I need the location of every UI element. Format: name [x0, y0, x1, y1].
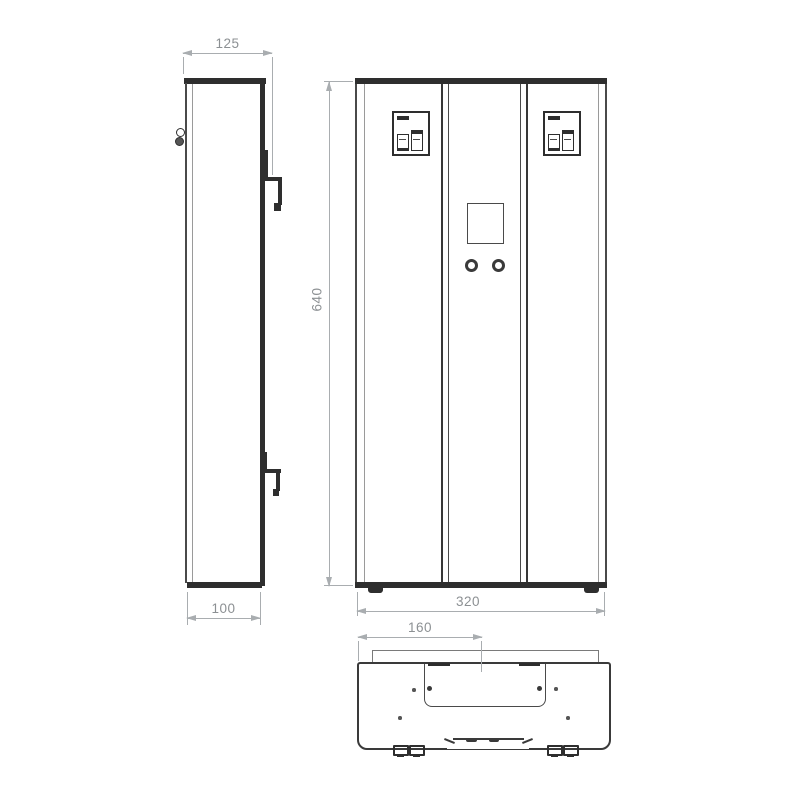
breaker-switch [411, 130, 423, 151]
dimension-depth-body: 100 [187, 601, 260, 619]
gland-tab [567, 754, 574, 757]
gland-tab [551, 754, 558, 757]
extension-line [187, 592, 188, 625]
side-front-inner-line [192, 84, 193, 582]
gland-tab [397, 754, 404, 757]
screw [537, 686, 542, 691]
pilot-hole [412, 688, 416, 692]
control-button [465, 259, 478, 272]
front-top-edge [355, 78, 607, 84]
arrowhead-right-icon [263, 50, 273, 56]
extension-line [324, 81, 353, 82]
dimension-line [358, 637, 482, 638]
extension-line [260, 592, 261, 625]
label-tag [397, 116, 409, 120]
front-left-seam [364, 84, 365, 582]
dimension-rail-offset: 160 [358, 620, 482, 638]
panel-divider-left [441, 84, 443, 582]
pilot-hole [554, 687, 558, 691]
extension-line [357, 592, 358, 616]
foot-left [368, 587, 383, 593]
front-right-edge [605, 84, 607, 582]
panel-divider-right-seam [520, 84, 521, 582]
pilot-hole [398, 716, 402, 720]
hanging-loop-icon [175, 137, 184, 146]
bottom-notch [466, 738, 477, 742]
control-button [492, 259, 505, 272]
dimension-depth-overall: 125 [183, 36, 272, 54]
control-unit-left [392, 111, 430, 156]
dimension-label: 320 [357, 594, 605, 609]
dimension-label: 640 [310, 280, 325, 320]
extension-line [358, 641, 359, 661]
panel-top-tick [519, 663, 540, 666]
extension-line [604, 592, 605, 616]
dimension-line [183, 53, 272, 54]
pilot-hole [566, 716, 570, 720]
extension-line [324, 585, 353, 586]
connection-panel [424, 664, 546, 707]
side-front-edge [185, 83, 187, 583]
extension-line [183, 57, 184, 74]
arrowhead-right-icon [473, 634, 483, 640]
bracket-bump [264, 150, 268, 179]
bottom-notch [489, 738, 499, 742]
foot-right [584, 587, 599, 593]
extension-line [481, 641, 482, 672]
front-left-edge [355, 84, 357, 582]
gland-tab [413, 754, 420, 757]
bottom-step-cover [447, 741, 529, 749]
bracket-leg [278, 181, 282, 205]
bracket-bump [263, 452, 267, 470]
dimension-line-height [329, 82, 330, 586]
arrowhead-up-icon [326, 81, 332, 91]
dimension-line [187, 618, 260, 619]
front-bottom-edge [355, 582, 607, 588]
panel-divider-right [526, 84, 528, 582]
hanging-loop-icon [176, 128, 185, 137]
dimension-label: 100 [187, 601, 260, 616]
dimension-label: 160 [358, 620, 482, 635]
panel-top-tick [428, 663, 450, 666]
technical-drawing-canvas: 125 100 640 320 160 [0, 0, 800, 800]
bracket-foot [273, 489, 279, 496]
extension-line [272, 57, 273, 175]
screw [427, 686, 432, 691]
label-tag [548, 116, 560, 120]
arrowhead-left-icon [357, 634, 367, 640]
front-right-seam [598, 84, 599, 582]
panel-divider-left-seam [448, 84, 449, 582]
dimension-line [357, 611, 605, 612]
display-screen [467, 203, 504, 244]
control-unit-right [543, 111, 581, 156]
breaker-switch [548, 134, 560, 151]
breaker-switch [397, 134, 409, 151]
dimension-label: 125 [183, 36, 272, 51]
arrowhead-left-icon [182, 50, 192, 56]
side-bottom-edge [187, 582, 262, 588]
bracket-foot [274, 203, 281, 211]
dimension-width: 320 [357, 594, 605, 612]
side-top-edge [184, 78, 266, 84]
breaker-switch [562, 130, 574, 151]
